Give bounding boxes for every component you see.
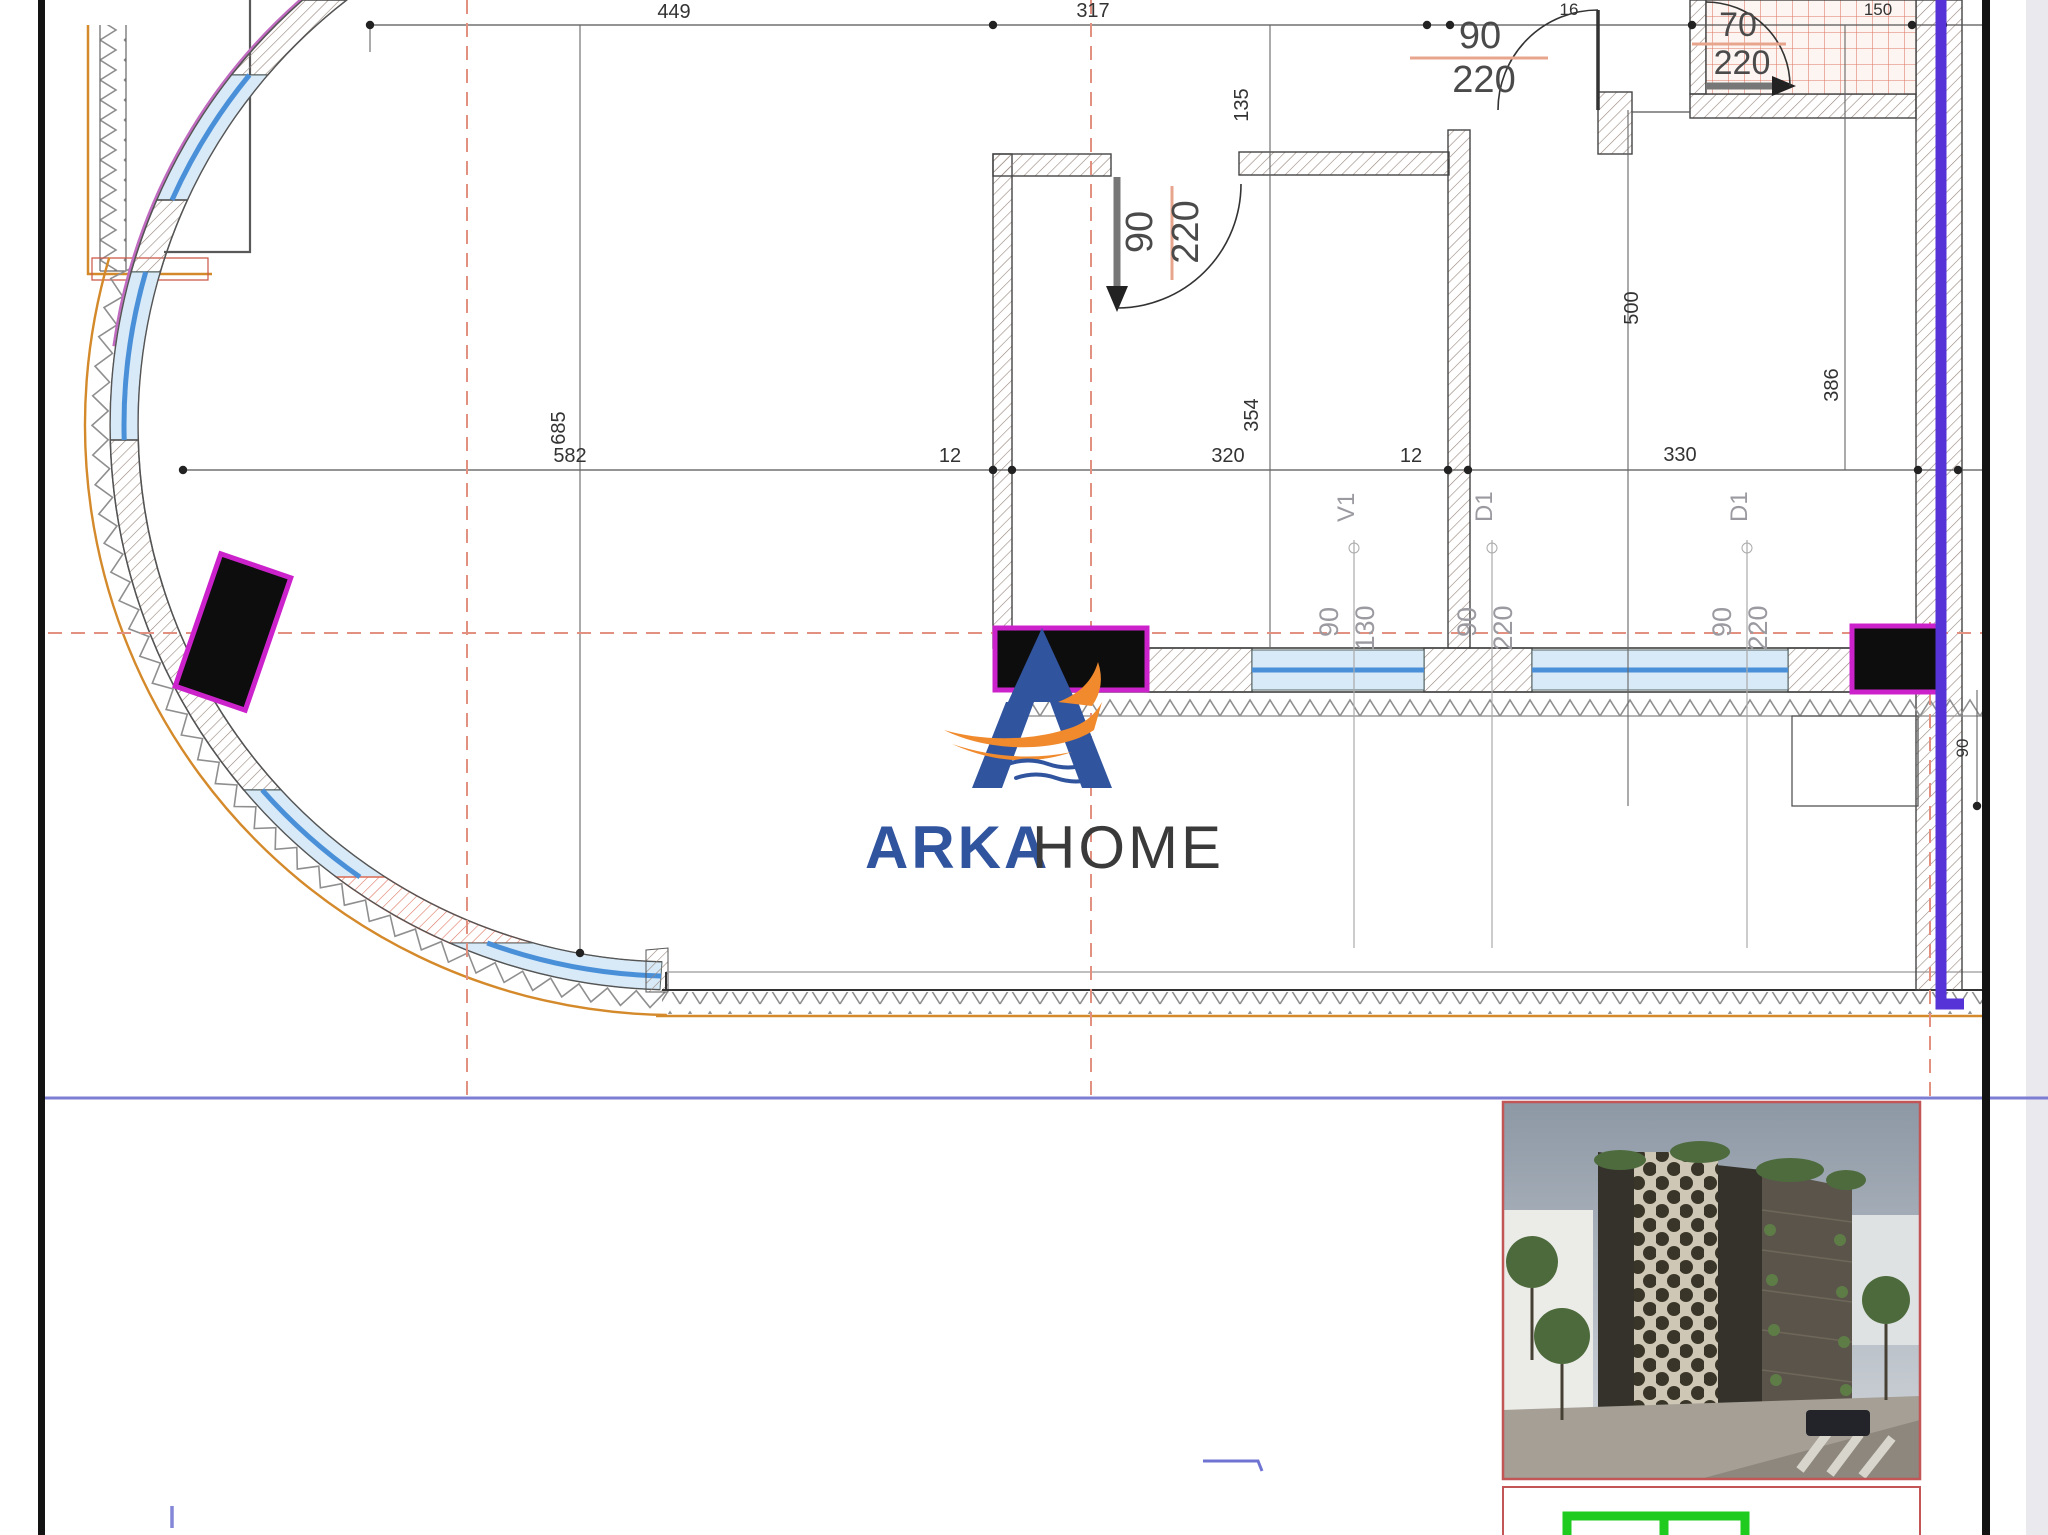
wall-top-a [993,154,1111,176]
wall-shaft-left [1690,0,1706,94]
tag-id: V1 [1333,493,1360,522]
wall-vertical-mid [1448,130,1470,648]
door1-height: 220 [1165,200,1207,263]
dim-386: 386 [1821,368,1843,401]
floor-plan-drawing: 449 317 16 150 135 500 386 354 685 90 58… [0,0,2048,1535]
dim-685: 685 [548,411,570,444]
page-right-margin [2026,0,2048,1535]
dim-12a: 12 [939,445,961,467]
row-pier [1148,648,1252,692]
page-border-left [38,0,45,1535]
tag-id: D1 [1726,491,1753,522]
door3-width: 70 [1719,6,1757,44]
dim-150: 150 [1864,0,1892,19]
south-window-row [1012,648,1986,716]
dim-354: 354 [1241,398,1263,431]
neighbor-insulation-zigzag [100,25,126,271]
wall-vertical-left [993,154,1012,648]
row-pier [1424,648,1532,692]
dim-582: 582 [553,445,586,467]
tag-height: 220 [1488,605,1518,650]
tag-height: 130 [1350,605,1380,650]
door1-width: 90 [1119,211,1161,253]
row-pier [1788,648,1852,692]
tag-width: 90 [1314,607,1344,637]
render-car [1806,1410,1870,1436]
dim-320: 320 [1211,445,1244,467]
dim-330: 330 [1663,444,1696,466]
logo-text-arka: ARKA [865,814,1050,881]
render-content [1503,1102,1920,1480]
dim-12b: 12 [1400,445,1422,467]
door2-width: 90 [1459,15,1501,57]
tag-width: 90 [1707,607,1737,637]
column [1852,626,1944,692]
dim-16: 16 [1560,0,1579,19]
dim-90-right: 90 [1953,739,1972,758]
logo-text-home: HOME [1032,814,1224,881]
tag-id: D1 [1471,491,1498,522]
facade-end-cap [646,948,668,992]
row-insulation-zigzag [1012,694,1986,716]
wall-shaft-bottom [1690,94,1916,118]
door2-height: 220 [1452,59,1515,101]
title-panel [1503,1487,1920,1535]
dim-317: 317 [1076,0,1109,22]
dim-135: 135 [1231,88,1253,121]
floor-plan-page: 449 317 16 150 135 500 386 354 685 90 58… [0,0,2048,1535]
wall-entry-stub [1598,92,1632,154]
page-border-right [1982,0,1990,1535]
tag-height: 220 [1743,605,1773,650]
tag-width: 90 [1452,607,1482,637]
dim-449: 449 [657,1,690,23]
door3-height: 220 [1714,44,1771,82]
slab-insulation-zigzag [662,992,1986,1014]
dim-500: 500 [1621,291,1643,324]
building-render-image [1503,1102,1920,1480]
